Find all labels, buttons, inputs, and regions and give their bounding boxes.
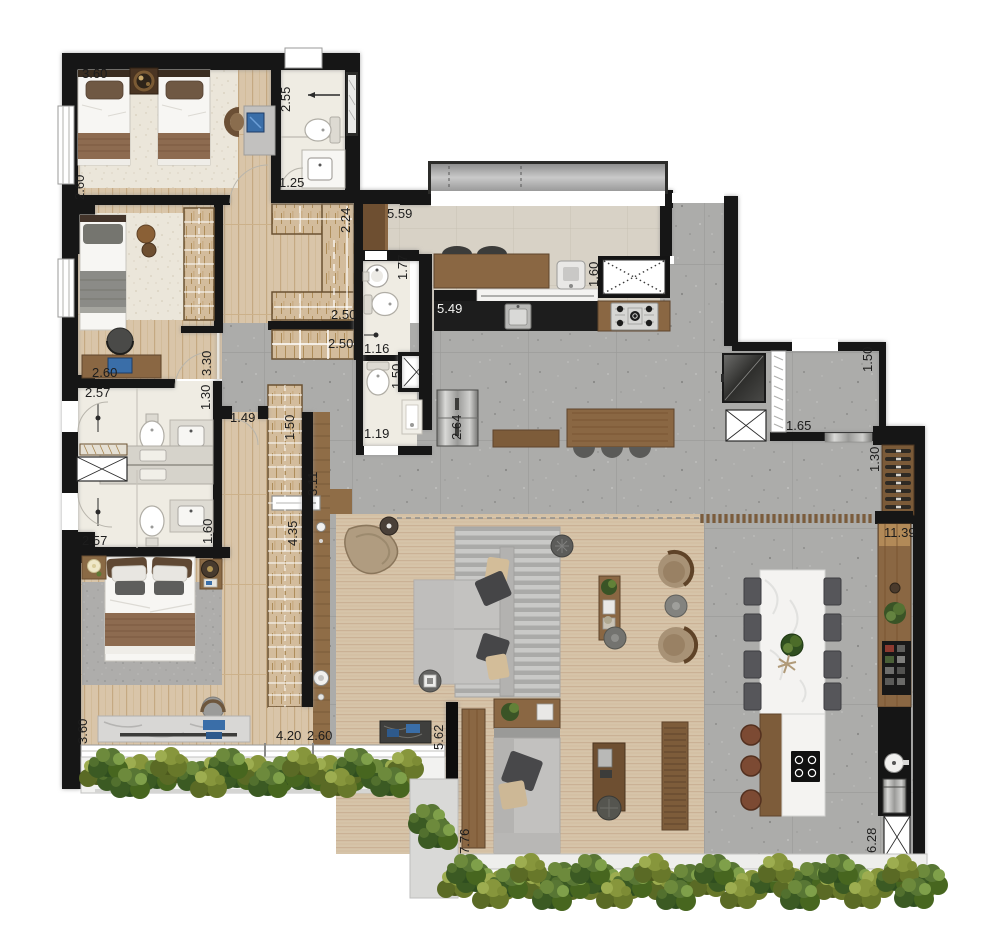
svg-text:11.39: 11.39 <box>884 525 916 540</box>
svg-text:1.77: 1.77 <box>395 255 410 280</box>
svg-text:5.49: 5.49 <box>437 301 462 316</box>
svg-text:1.16: 1.16 <box>364 341 389 356</box>
svg-text:1.49: 1.49 <box>230 410 255 425</box>
svg-text:5.59: 5.59 <box>387 206 412 221</box>
svg-text:4.20: 4.20 <box>276 728 301 743</box>
svg-text:6.28: 6.28 <box>864 828 879 853</box>
svg-text:2.50: 2.50 <box>331 307 356 322</box>
svg-text:3.11: 3.11 <box>305 472 320 496</box>
svg-text:2.57: 2.57 <box>85 385 110 400</box>
svg-text:2.60: 2.60 <box>92 365 117 380</box>
svg-text:1.25: 1.25 <box>279 175 304 190</box>
svg-text:7.76: 7.76 <box>457 829 472 854</box>
svg-text:2.57: 2.57 <box>82 533 107 548</box>
svg-text:1.65: 1.65 <box>786 418 811 433</box>
svg-text:1.30: 1.30 <box>867 447 882 472</box>
svg-text:1.50: 1.50 <box>860 347 875 372</box>
svg-text:1.60: 1.60 <box>586 262 601 287</box>
svg-text:1.60: 1.60 <box>200 519 215 544</box>
svg-text:5.62: 5.62 <box>431 725 446 750</box>
svg-text:2.50: 2.50 <box>328 336 353 351</box>
svg-text:2.24: 2.24 <box>338 208 353 233</box>
svg-text:3.60: 3.60 <box>82 66 107 81</box>
svg-text:2.64: 2.64 <box>449 415 464 440</box>
svg-text:1.50: 1.50 <box>282 415 297 440</box>
svg-text:2.55: 2.55 <box>278 87 293 112</box>
svg-text:3.60: 3.60 <box>75 719 90 744</box>
svg-text:1.19: 1.19 <box>364 426 389 441</box>
svg-text:4.35: 4.35 <box>285 521 300 546</box>
svg-text:1.50: 1.50 <box>389 364 404 389</box>
svg-text:3.30: 3.30 <box>199 351 214 376</box>
svg-text:2.60: 2.60 <box>72 175 87 200</box>
svg-text:1.30: 1.30 <box>198 385 213 410</box>
svg-text:2.60: 2.60 <box>307 728 332 743</box>
